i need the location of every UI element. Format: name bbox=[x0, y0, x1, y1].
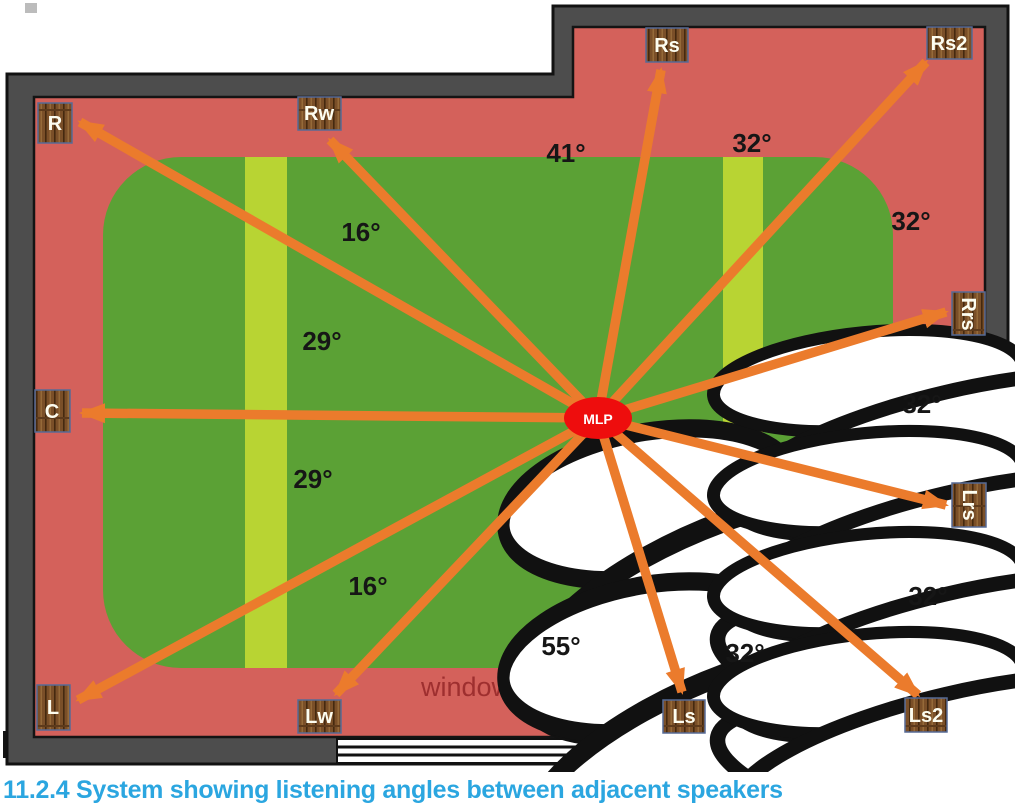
speaker-label: Rs bbox=[654, 35, 680, 57]
speaker-ls: Ls bbox=[663, 700, 705, 733]
speaker-label: Lrs bbox=[958, 489, 980, 520]
speaker-l: L bbox=[37, 685, 70, 730]
mlp-marker: MLP bbox=[564, 397, 632, 439]
figure-caption: 11.2.4 System showing listening angles b… bbox=[3, 776, 1003, 805]
angle-label-r-rw: 16° bbox=[341, 217, 380, 247]
speaker-label: C bbox=[45, 401, 59, 423]
speaker-label: L bbox=[47, 697, 59, 719]
angle-label-rs2-rrs: 32° bbox=[891, 206, 930, 236]
window-frame bbox=[337, 739, 590, 763]
speaker-label: Ls2 bbox=[909, 705, 943, 727]
angle-label-lw-l: 16° bbox=[348, 571, 387, 601]
speaker-rrs: Rrs bbox=[952, 292, 985, 335]
speaker-lw: Lw bbox=[298, 700, 341, 733]
speaker-rs2: Rs2 bbox=[927, 27, 972, 59]
angle-label-ls2-ls: 32° bbox=[725, 638, 764, 668]
speaker-rs: Rs bbox=[646, 28, 688, 62]
figure: window window door MLP R Rw bbox=[0, 0, 1015, 811]
angle-label-l-c: 29° bbox=[293, 464, 332, 494]
speaker-label: Rrs bbox=[957, 297, 979, 330]
arrow-mlp-to-c bbox=[82, 413, 598, 418]
speaker-label: Ls bbox=[672, 706, 695, 728]
page-artifact bbox=[25, 3, 37, 13]
angle-label-rw-rs: 41° bbox=[546, 138, 585, 168]
speaker-ls2: Ls2 bbox=[905, 698, 947, 732]
angle-label-lrs-ls2: 32° bbox=[908, 581, 947, 611]
speaker-label: Rw bbox=[304, 103, 334, 125]
angle-label-c-r: 29° bbox=[302, 326, 341, 356]
mlp-label: MLP bbox=[583, 411, 613, 427]
speaker-label: Rs2 bbox=[931, 33, 968, 55]
angle-label-rrs-lrs: 32° bbox=[902, 389, 941, 419]
speaker-label: R bbox=[48, 113, 63, 135]
speaker-c: C bbox=[35, 390, 70, 432]
speaker-lrs: Lrs bbox=[952, 483, 986, 527]
angle-label-ls-lw: 55° bbox=[541, 631, 580, 661]
speaker-rw: Rw bbox=[298, 97, 341, 130]
angle-label-rs-rs2: 32° bbox=[732, 128, 771, 158]
speaker-r: R bbox=[38, 103, 72, 143]
speaker-label: Lw bbox=[305, 706, 333, 728]
window-bottom bbox=[337, 739, 590, 763]
floor-plan-diagram: window window door MLP R Rw bbox=[0, 0, 1015, 772]
